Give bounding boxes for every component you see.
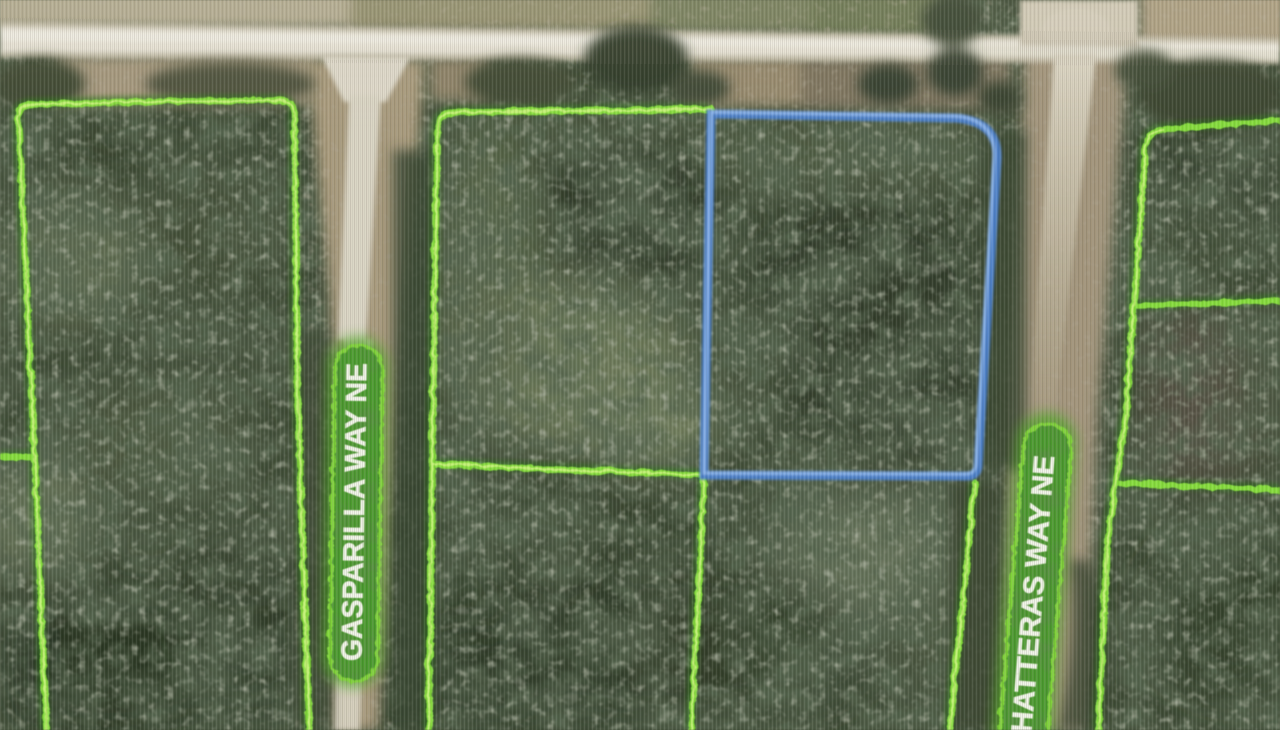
svg-text:GASPARILLA WAY NE: GASPARILLA WAY NE: [336, 363, 373, 662]
